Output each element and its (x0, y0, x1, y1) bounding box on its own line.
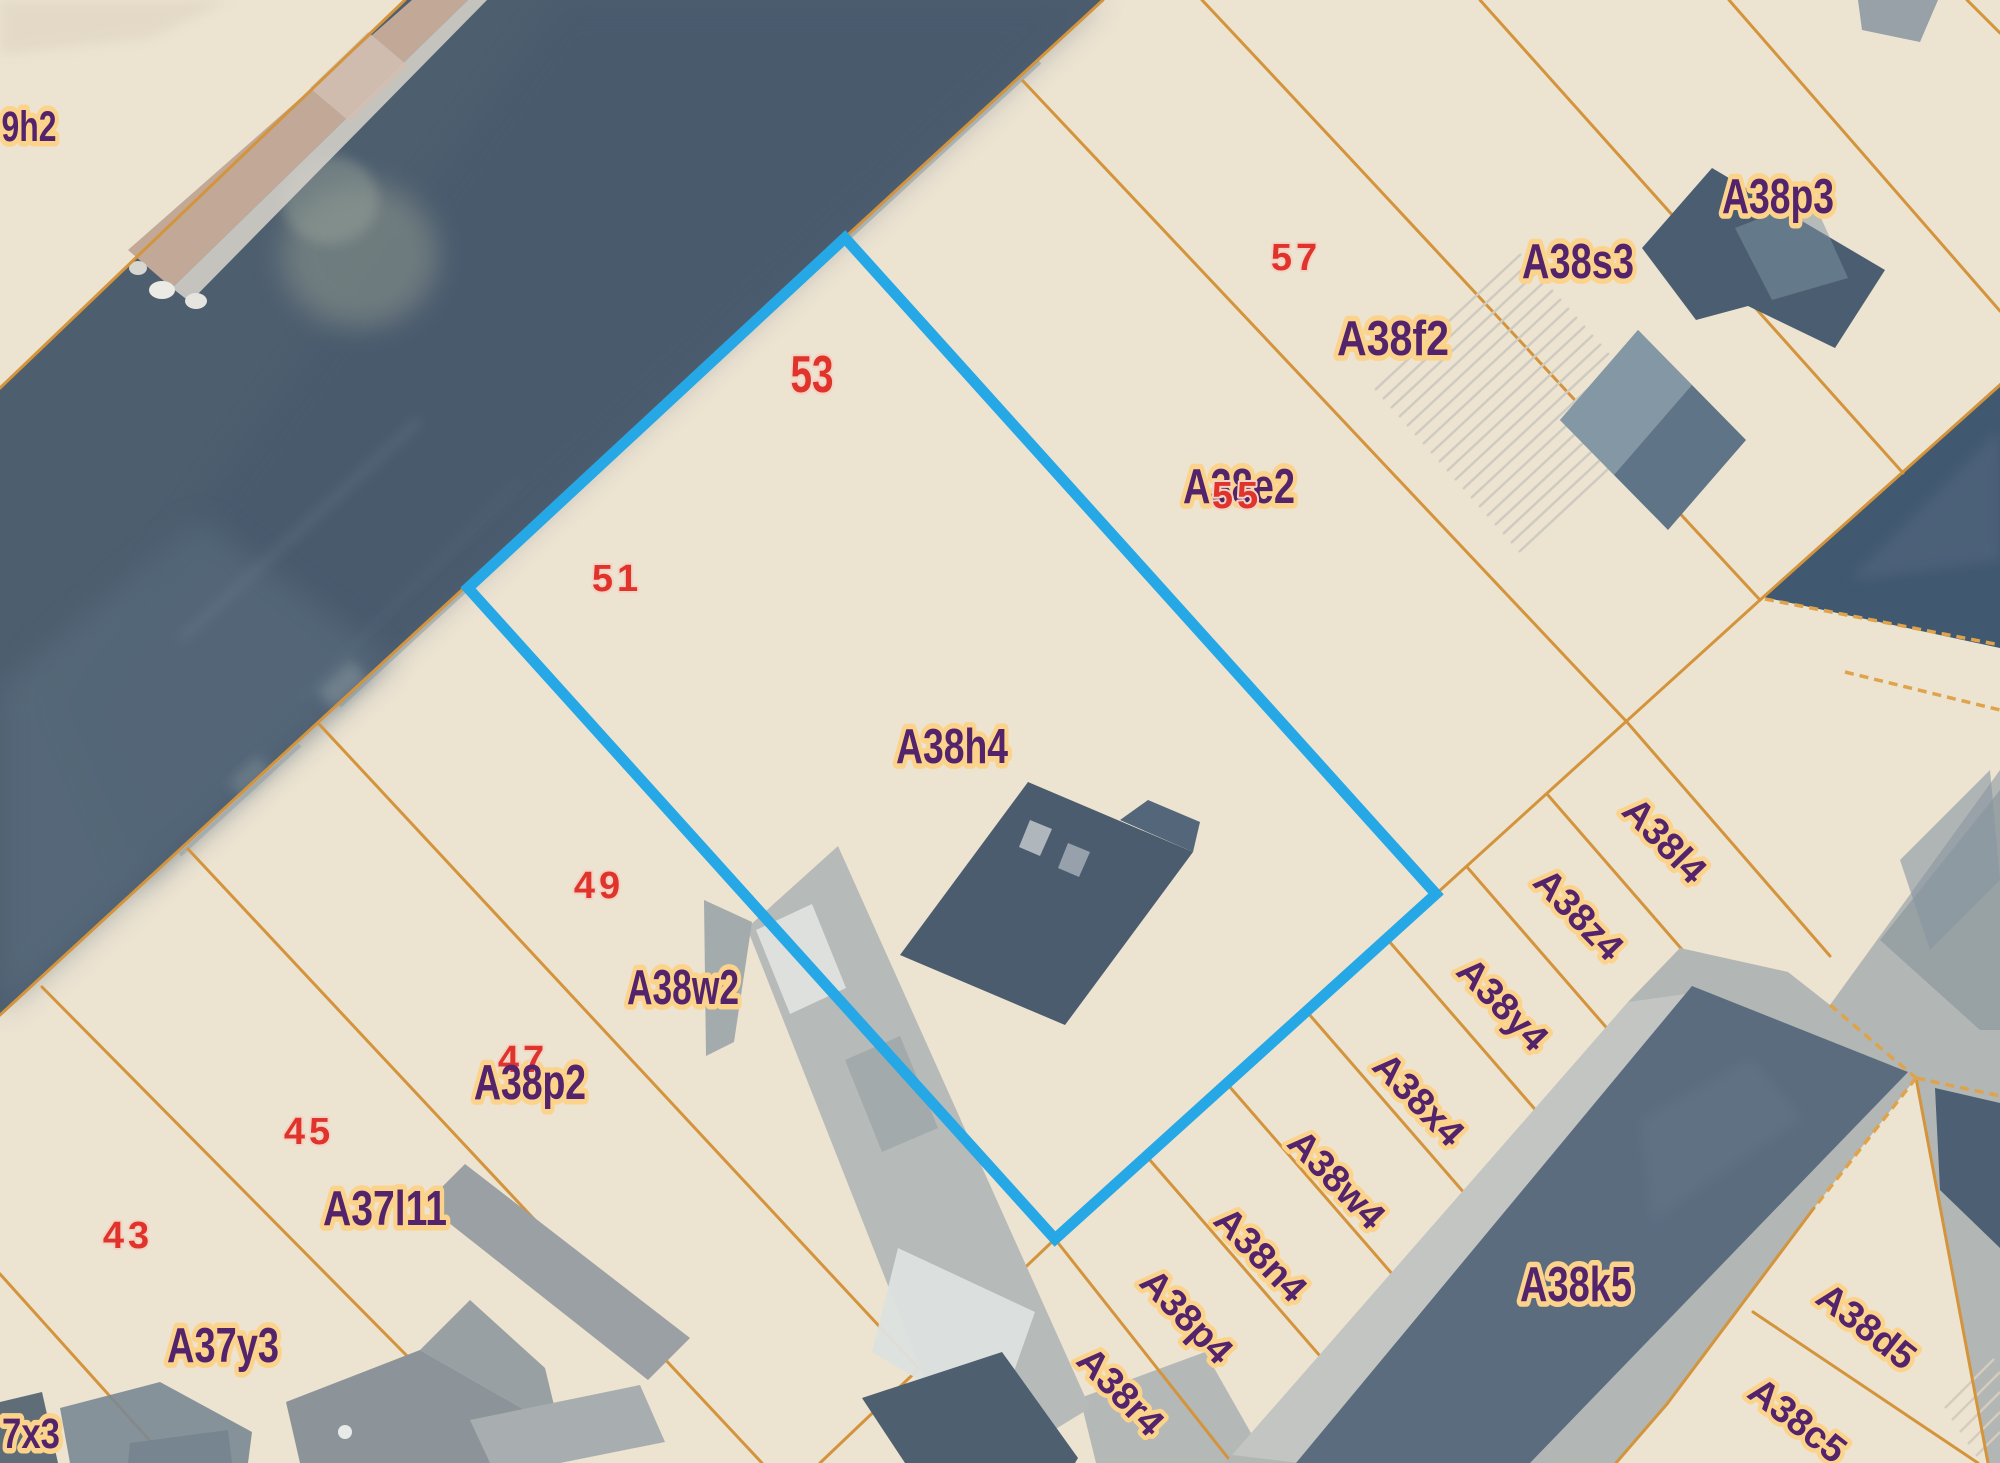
svg-text:A38w2: A38w2 (627, 961, 739, 1015)
svg-text:A38f2: A38f2 (1337, 312, 1449, 366)
svg-text:A37y3: A37y3 (167, 1319, 279, 1373)
svg-text:53: 53 (791, 346, 834, 404)
svg-text:43: 43 (103, 1215, 153, 1257)
svg-text:9h2: 9h2 (2, 103, 57, 151)
svg-text:55: 55 (1212, 475, 1262, 517)
svg-text:A37l11: A37l11 (323, 1182, 447, 1236)
svg-text:51: 51 (592, 558, 642, 600)
svg-text:7x3: 7x3 (2, 1410, 60, 1458)
svg-text:A38h4: A38h4 (896, 720, 1008, 774)
svg-text:49: 49 (574, 865, 624, 907)
svg-text:57: 57 (1271, 237, 1321, 279)
svg-text:A38s3: A38s3 (1522, 235, 1634, 289)
svg-text:A38k5: A38k5 (1520, 1258, 1632, 1312)
svg-text:A38p2: A38p2 (474, 1056, 586, 1110)
svg-text:A38p3: A38p3 (1722, 170, 1834, 224)
svg-text:45: 45 (284, 1111, 334, 1153)
